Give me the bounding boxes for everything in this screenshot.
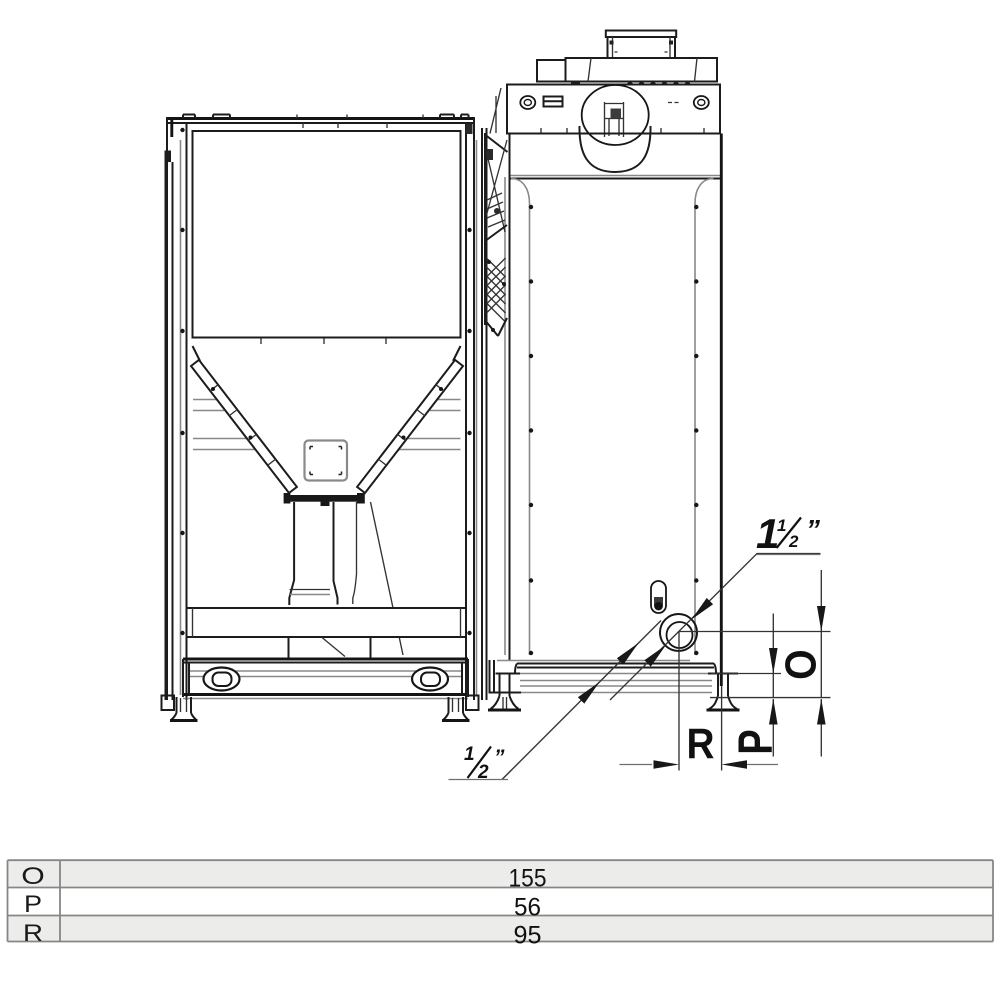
svg-text:O: O: [775, 649, 825, 679]
svg-text:”: ”: [806, 514, 820, 545]
svg-text:P: P: [24, 891, 42, 918]
svg-text:56: 56: [514, 894, 541, 922]
svg-text:1: 1: [777, 516, 786, 535]
svg-text:95: 95: [514, 922, 542, 950]
svg-text:2: 2: [788, 532, 799, 551]
svg-text:P: P: [729, 729, 782, 754]
svg-text:1: 1: [756, 510, 779, 557]
svg-text:R: R: [687, 720, 715, 768]
svg-text:155: 155: [509, 865, 547, 893]
svg-text:O: O: [21, 863, 45, 890]
svg-text:R: R: [23, 920, 43, 947]
svg-text:”: ”: [494, 746, 505, 769]
svg-text:1: 1: [464, 744, 475, 765]
